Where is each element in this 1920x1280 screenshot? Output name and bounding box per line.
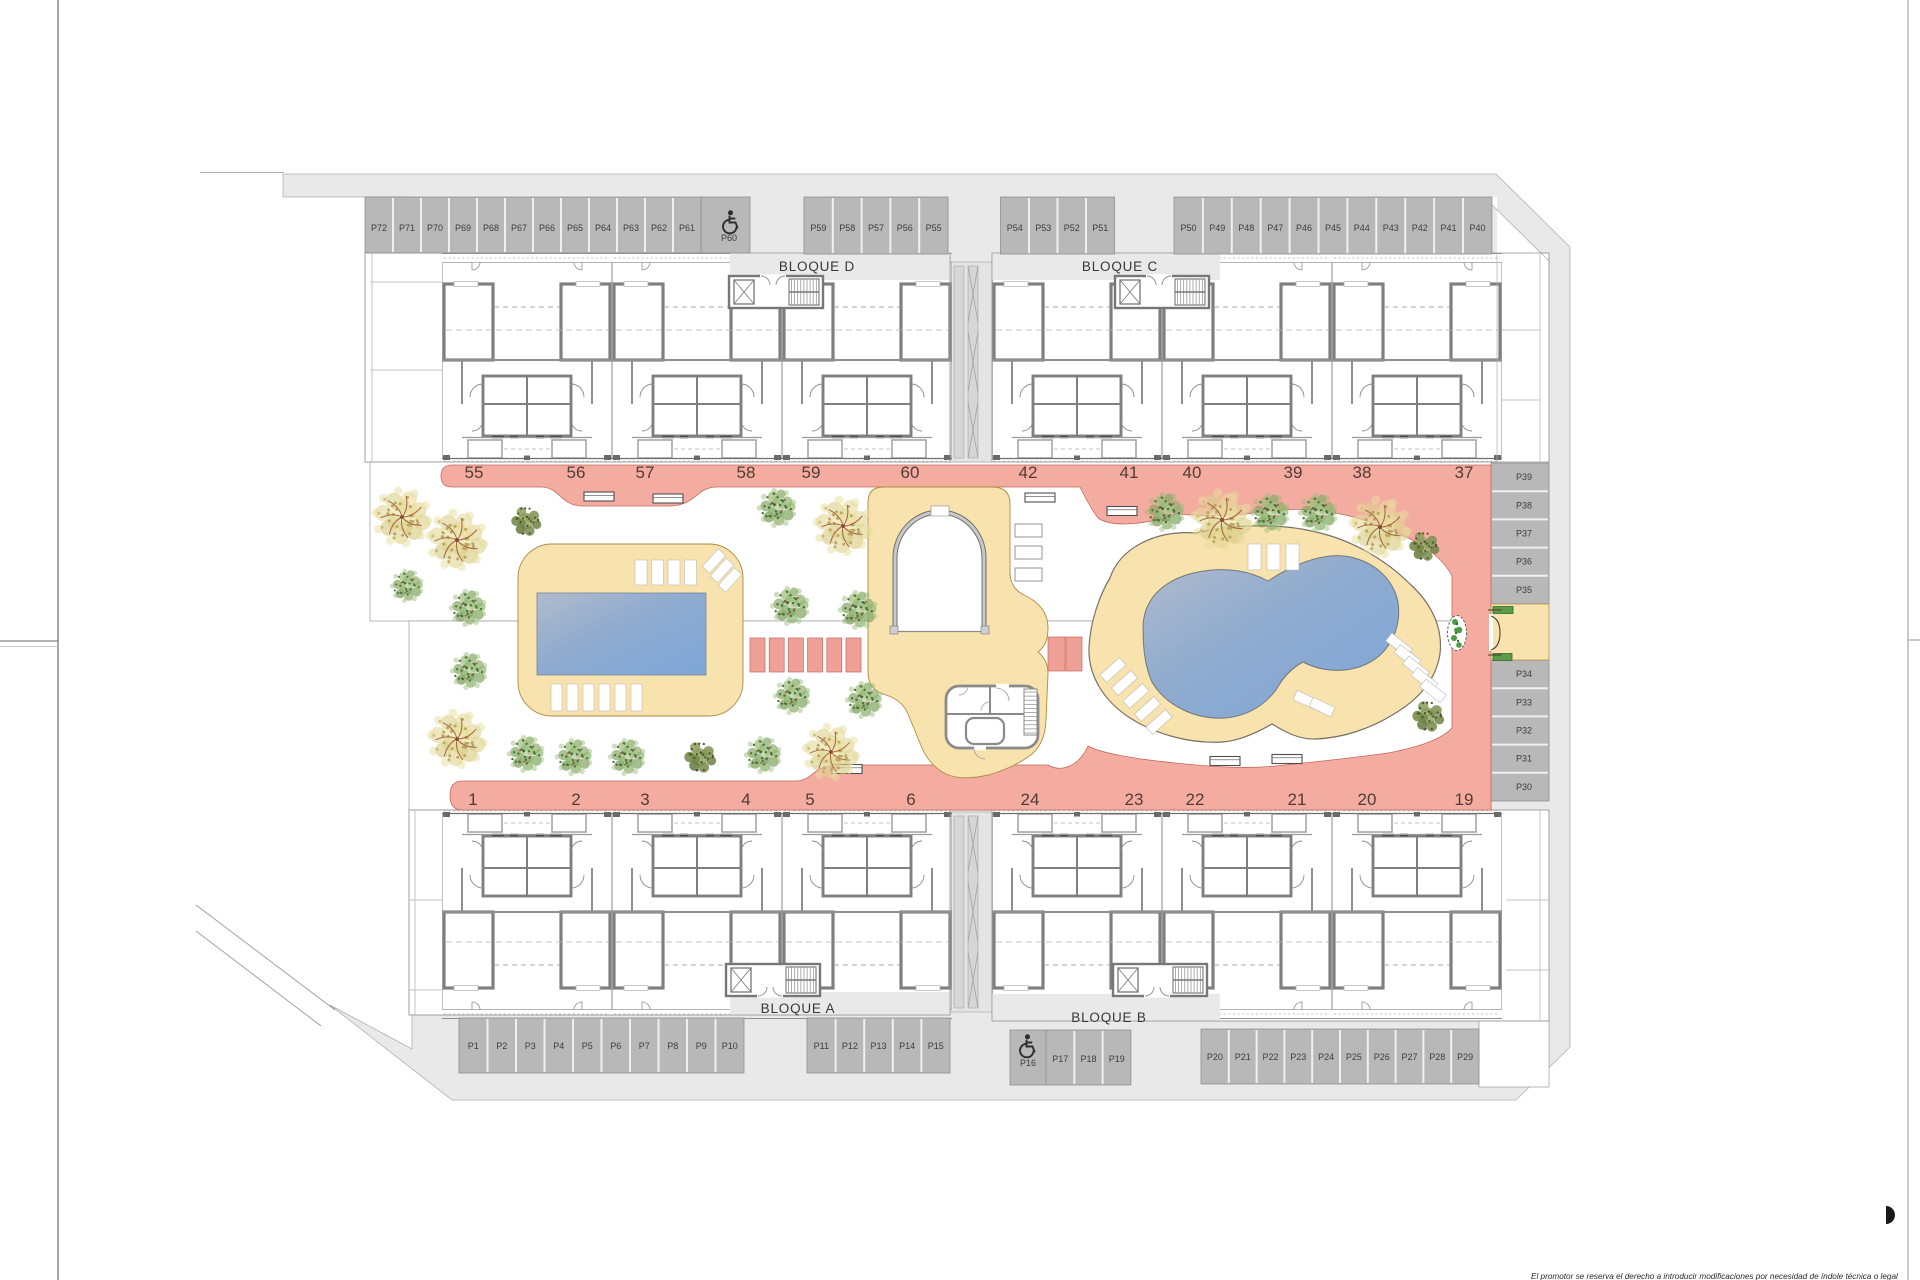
svg-text:P17: P17 — [1052, 1054, 1068, 1064]
svg-text:P19: P19 — [1109, 1054, 1125, 1064]
svg-text:P31: P31 — [1516, 754, 1532, 764]
svg-text:P22: P22 — [1262, 1052, 1278, 1062]
svg-text:39: 39 — [1284, 463, 1303, 482]
svg-text:P58: P58 — [839, 223, 855, 233]
svg-text:P20: P20 — [1207, 1052, 1223, 1062]
svg-text:56: 56 — [567, 463, 586, 482]
svg-text:P1: P1 — [468, 1041, 479, 1051]
svg-text:P6: P6 — [610, 1041, 621, 1051]
svg-text:P41: P41 — [1440, 223, 1456, 233]
svg-text:3: 3 — [640, 790, 649, 809]
svg-text:P3: P3 — [525, 1041, 536, 1051]
svg-text:P66: P66 — [539, 223, 555, 233]
svg-text:P25: P25 — [1346, 1052, 1362, 1062]
svg-text:P46: P46 — [1296, 223, 1312, 233]
svg-text:P38: P38 — [1516, 500, 1532, 510]
svg-text:40: 40 — [1183, 463, 1202, 482]
svg-text:P32: P32 — [1516, 726, 1532, 736]
svg-text:El promotor se reserva el dere: El promotor se reserva el derecho a intr… — [1531, 1272, 1898, 1280]
svg-text:1: 1 — [468, 790, 477, 809]
svg-text:21: 21 — [1288, 790, 1307, 809]
svg-text:P67: P67 — [511, 223, 527, 233]
svg-text:P16: P16 — [1020, 1058, 1036, 1068]
svg-text:BLOQUE C: BLOQUE C — [1082, 259, 1158, 274]
svg-text:P47: P47 — [1267, 223, 1283, 233]
svg-text:BLOQUE B: BLOQUE B — [1071, 1010, 1146, 1025]
svg-text:P27: P27 — [1401, 1052, 1417, 1062]
svg-text:55: 55 — [465, 463, 484, 482]
svg-text:23: 23 — [1125, 790, 1144, 809]
svg-text:P55: P55 — [926, 223, 942, 233]
svg-text:24: 24 — [1021, 790, 1040, 809]
svg-text:P68: P68 — [483, 223, 499, 233]
svg-text:P44: P44 — [1354, 223, 1370, 233]
svg-text:P18: P18 — [1080, 1054, 1096, 1064]
svg-text:P72: P72 — [371, 223, 387, 233]
svg-text:4: 4 — [741, 790, 750, 809]
svg-text:P28: P28 — [1429, 1052, 1445, 1062]
svg-text:P30: P30 — [1516, 782, 1532, 792]
svg-text:P50: P50 — [1180, 223, 1196, 233]
svg-text:42: 42 — [1019, 463, 1038, 482]
svg-text:P2: P2 — [496, 1041, 507, 1051]
svg-text:P69: P69 — [455, 223, 471, 233]
svg-text:P43: P43 — [1383, 223, 1399, 233]
svg-text:57: 57 — [636, 463, 655, 482]
svg-text:P49: P49 — [1209, 223, 1225, 233]
svg-text:BLOQUE D: BLOQUE D — [779, 259, 855, 274]
svg-text:P11: P11 — [814, 1041, 829, 1051]
svg-text:59: 59 — [802, 463, 821, 482]
svg-text:P60: P60 — [721, 233, 737, 243]
svg-text:19: 19 — [1455, 790, 1474, 809]
svg-text:P15: P15 — [928, 1041, 944, 1051]
svg-text:22: 22 — [1186, 790, 1205, 809]
svg-text:P9: P9 — [696, 1041, 707, 1051]
svg-text:P33: P33 — [1516, 697, 1532, 707]
svg-text:P56: P56 — [897, 223, 913, 233]
svg-text:6: 6 — [906, 790, 915, 809]
svg-text:P48: P48 — [1238, 223, 1254, 233]
svg-text:P29: P29 — [1457, 1052, 1473, 1062]
svg-text:41: 41 — [1120, 463, 1139, 482]
svg-text:60: 60 — [901, 463, 920, 482]
svg-text:P35: P35 — [1516, 585, 1532, 595]
svg-text:58: 58 — [737, 463, 756, 482]
svg-text:37: 37 — [1455, 463, 1474, 482]
svg-text:P62: P62 — [651, 223, 667, 233]
svg-text:P59: P59 — [810, 223, 826, 233]
svg-text:P8: P8 — [667, 1041, 678, 1051]
svg-text:P7: P7 — [639, 1041, 650, 1051]
svg-text:P13: P13 — [870, 1041, 886, 1051]
svg-text:P63: P63 — [623, 223, 639, 233]
svg-text:P14: P14 — [899, 1041, 915, 1051]
svg-text:P26: P26 — [1374, 1052, 1390, 1062]
svg-text:P45: P45 — [1325, 223, 1341, 233]
svg-text:P10: P10 — [722, 1041, 738, 1051]
svg-text:P54: P54 — [1007, 223, 1023, 233]
svg-text:2: 2 — [571, 790, 580, 809]
svg-text:P52: P52 — [1064, 223, 1080, 233]
svg-text:P40: P40 — [1469, 223, 1485, 233]
svg-text:38: 38 — [1353, 463, 1372, 482]
svg-text:P42: P42 — [1412, 223, 1428, 233]
svg-text:20: 20 — [1358, 790, 1377, 809]
svg-text:P57: P57 — [868, 223, 884, 233]
svg-text:P4: P4 — [553, 1041, 564, 1051]
svg-text:P36: P36 — [1516, 557, 1532, 567]
svg-text:P61: P61 — [679, 223, 695, 233]
svg-text:BLOQUE A: BLOQUE A — [761, 1001, 836, 1016]
svg-text:P53: P53 — [1035, 223, 1051, 233]
svg-text:P12: P12 — [842, 1041, 858, 1051]
svg-text:P71: P71 — [399, 223, 415, 233]
svg-text:P21: P21 — [1235, 1052, 1251, 1062]
svg-text:P64: P64 — [595, 223, 611, 233]
svg-text:P34: P34 — [1516, 669, 1532, 679]
svg-text:P70: P70 — [427, 223, 443, 233]
svg-text:P65: P65 — [567, 223, 583, 233]
svg-text:P23: P23 — [1290, 1052, 1306, 1062]
svg-text:P51: P51 — [1092, 223, 1108, 233]
svg-text:5: 5 — [805, 790, 814, 809]
svg-text:P5: P5 — [582, 1041, 593, 1051]
svg-text:P37: P37 — [1516, 529, 1532, 539]
svg-text:P24: P24 — [1318, 1052, 1334, 1062]
svg-text:P39: P39 — [1516, 472, 1532, 482]
